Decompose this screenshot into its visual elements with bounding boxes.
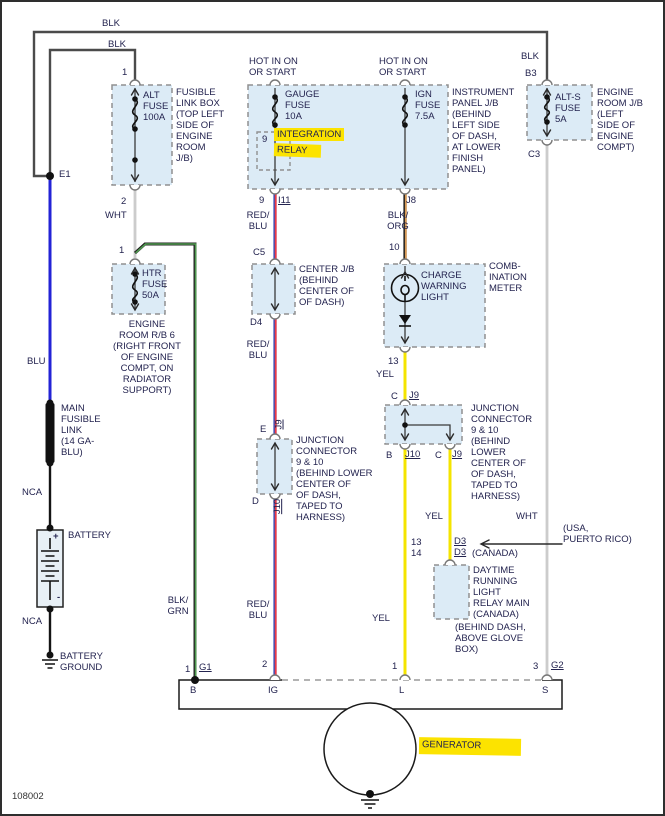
- terminal-label-13: 13: [388, 356, 399, 367]
- wire-label-blk-b3: BLK: [521, 51, 539, 62]
- terminal-label-13-d3: 13: [411, 537, 422, 548]
- wire-label-blk-org: BLK/ ORG: [384, 210, 412, 232]
- terminal-label-d4: D4: [250, 317, 262, 328]
- connector-label-g1: G1: [199, 662, 212, 673]
- hot-in-on-label-2: HOT IN ON OR START: [379, 56, 428, 78]
- wire-label-blk-top: BLK: [102, 18, 120, 29]
- generator-terminal-b: B: [190, 685, 196, 696]
- main-fusible-link-note: MAIN FUSIBLE LINK (14 GA- BLU): [61, 403, 101, 458]
- terminal-label-alt-1: 1: [122, 67, 127, 78]
- connector-label-i11: I11: [278, 195, 291, 206]
- usa-pointer-arrow: [481, 540, 562, 548]
- terminal-label-htr-1: 1: [119, 245, 124, 256]
- drl-relay-location-note: (BEHIND DASH, ABOVE GLOVE BOX): [455, 622, 526, 655]
- gauge-fuse-label: GAUGE FUSE 10A: [285, 89, 319, 122]
- integration-relay-label-line1: INTEGRATION: [274, 128, 344, 141]
- drl-relay-note: DAYTIME RUNNING LIGHT RELAY MAIN (CANADA…: [473, 565, 530, 620]
- terminal-label-b: B: [386, 450, 392, 461]
- terminal-label-ig-2: 2: [262, 659, 267, 670]
- ign-fuse-label: IGN FUSE 7.5A: [415, 89, 440, 122]
- terminal-label-c-bot: C: [435, 450, 442, 461]
- junction-connector-right-note: JUNCTION CONNECTOR 9 & 10 (BEHIND LOWER …: [471, 403, 532, 502]
- battery-ground-dot: [47, 652, 54, 659]
- battery-minus-sign: -: [57, 592, 60, 603]
- generator-ground-dot: [366, 790, 374, 798]
- terminal-label-d: D: [252, 496, 259, 507]
- terminal-label-10: 10: [389, 242, 400, 253]
- usa-puerto-rico-note: (USA, PUERTO RICO): [563, 523, 632, 545]
- terminal-label-14-d3: 14: [411, 548, 422, 559]
- generator-terminal-l: L: [399, 685, 404, 696]
- battery-ground-icon: [42, 660, 58, 668]
- terminal-label-e: E: [260, 424, 266, 435]
- terminal-label-l-1: 1: [392, 661, 397, 672]
- hot-in-on-label-1: HOT IN ON OR START: [249, 56, 298, 78]
- terminal-label-j8: J8: [406, 195, 416, 206]
- center-jb-note: CENTER J/B (BEHIND CENTER OF OF DASH): [299, 264, 354, 308]
- wire-label-red-blu-3: RED/ BLU: [244, 599, 272, 621]
- main-fusible-link-icon: [46, 403, 55, 463]
- battery-plus-sign: +: [53, 531, 59, 542]
- engine-room-rb6-note: ENGINE ROOM R/B 6 (RIGHT FRONT OF ENGINE…: [97, 319, 197, 396]
- terminal-label-9: 9: [259, 195, 264, 206]
- canada-note: (CANADA): [472, 548, 518, 559]
- wire-label-wht-1: WHT: [105, 210, 127, 221]
- generator-icon: [324, 703, 416, 795]
- fusible-link-box-note: FUSIBLE LINK BOX (TOP LEFT SIDE OF ENGIN…: [176, 87, 224, 164]
- integration-relay-label-line2: RELAY: [274, 143, 322, 158]
- terminal-label-c5: C5: [253, 247, 265, 258]
- connector-label-d3-canada: D3: [454, 547, 466, 558]
- relay-pin-9-label: 9: [262, 134, 267, 145]
- battery-ground-label: BATTERY GROUND: [60, 651, 103, 673]
- combination-meter-note: COMB- INATION METER: [489, 261, 527, 294]
- terminal-label-e1: E1: [59, 169, 71, 180]
- junction-connector-mid-note: JUNCTION CONNECTOR 9 & 10 (BEHIND LOWER …: [296, 435, 373, 523]
- connector-label-d3-usa: D3: [454, 536, 466, 547]
- alt-s-fuse-label: ALT-S FUSE 5A: [555, 92, 581, 125]
- connector-label-j10-mid: J10: [272, 499, 283, 514]
- wire-label-yel-2: YEL: [372, 613, 390, 624]
- wire-label-yel-3: YEL: [425, 511, 443, 522]
- terminal-label-c-top: C: [391, 391, 398, 402]
- wire-label-nca-1: NCA: [22, 487, 42, 498]
- terminal-label-g1-1: 1: [185, 664, 190, 675]
- terminal-label-alt-2: 2: [121, 196, 126, 207]
- wire-label-yel-1: YEL: [376, 369, 394, 380]
- drl-relay-box: [434, 565, 469, 619]
- generator-ground-icon: [361, 800, 379, 808]
- htr-fuse-label: HTR FUSE 50A: [142, 268, 167, 301]
- junction-dot: [402, 422, 408, 428]
- terminal-label-c3: C3: [528, 149, 540, 160]
- instrument-panel-jb-note: INSTRUMENT PANEL J/B (BEHIND LEFT SIDE O…: [452, 87, 514, 175]
- wire-label-nca-2: NCA: [22, 616, 42, 627]
- wire-label-blu: BLU: [27, 356, 45, 367]
- diagram-id: 108002: [12, 791, 44, 802]
- engine-room-jb-note: ENGINE ROOM J/B (LEFT SIDE OF ENGINE COM…: [597, 87, 643, 153]
- battery-label: BATTERY: [68, 530, 111, 541]
- wire-label-red-blu-1: RED/ BLU: [244, 210, 272, 232]
- connector-label-g2: G2: [551, 660, 564, 671]
- wire-label-blk-left: BLK: [108, 39, 126, 50]
- wire-label-red-blu-2: RED/ BLU: [244, 339, 272, 361]
- terminal-label-b3: B3: [525, 68, 537, 79]
- connector-label-j10-right: J10: [405, 449, 420, 460]
- charge-warning-light-label: CHARGE WARNING LIGHT: [421, 270, 467, 303]
- e1-junction-dot: [46, 172, 54, 180]
- wire-label-blk-grn: BLK/ GRN: [164, 595, 192, 617]
- g1-junction-dot: [191, 676, 199, 684]
- terminal-label-g2-3: 3: [533, 661, 538, 672]
- wire-label-wht-3: WHT: [516, 511, 538, 522]
- generator-label: GENERATOR: [419, 737, 522, 756]
- connector-label-j9-bot: J9: [452, 449, 462, 460]
- alt-fuse-label: ALT FUSE 100A: [143, 90, 168, 123]
- connector-label-j9-top: J9: [409, 390, 419, 401]
- connector-label-j9-mid: J9: [274, 419, 285, 429]
- wiring-diagram-frame: BLK BLK E1 1 ALT FUSE 100A FUSIBLE LINK …: [0, 0, 665, 816]
- generator-terminal-ig: IG: [268, 685, 278, 696]
- generator-terminal-s: S: [542, 685, 548, 696]
